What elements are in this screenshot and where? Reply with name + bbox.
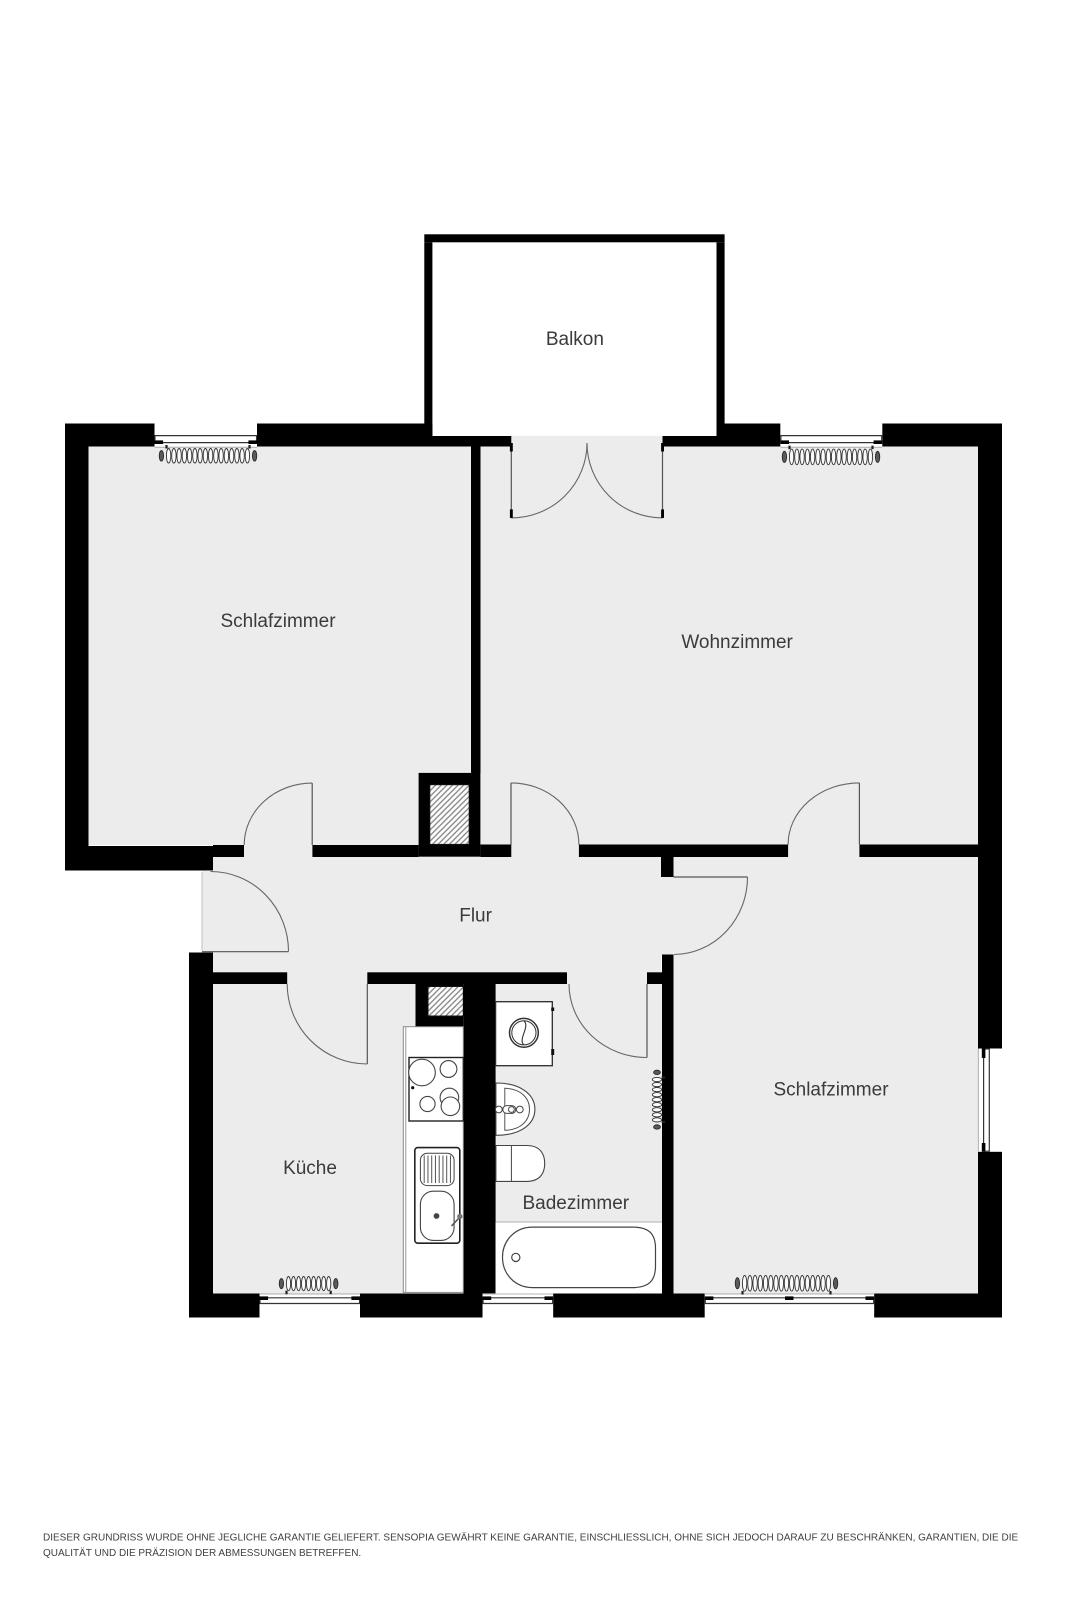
svg-text:Flur: Flur [459, 906, 492, 927]
svg-text:Wohnzimmer: Wohnzimmer [681, 632, 793, 653]
svg-text:DIESER GRUNDRISS WURDE OHNE JE: DIESER GRUNDRISS WURDE OHNE JEGLICHE GAR… [43, 1532, 1019, 1544]
svg-text:Schlafzimmer: Schlafzimmer [773, 1080, 889, 1101]
svg-text:Schlafzimmer: Schlafzimmer [220, 611, 336, 632]
svg-text:Badezimmer: Badezimmer [522, 1193, 629, 1214]
svg-text:Balkon: Balkon [546, 329, 604, 350]
svg-text:QUALITÄT UND DIE PRÄZISION DER: QUALITÄT UND DIE PRÄZISION DER ABMESSUNG… [43, 1547, 361, 1559]
svg-text:Küche: Küche [283, 1158, 337, 1179]
